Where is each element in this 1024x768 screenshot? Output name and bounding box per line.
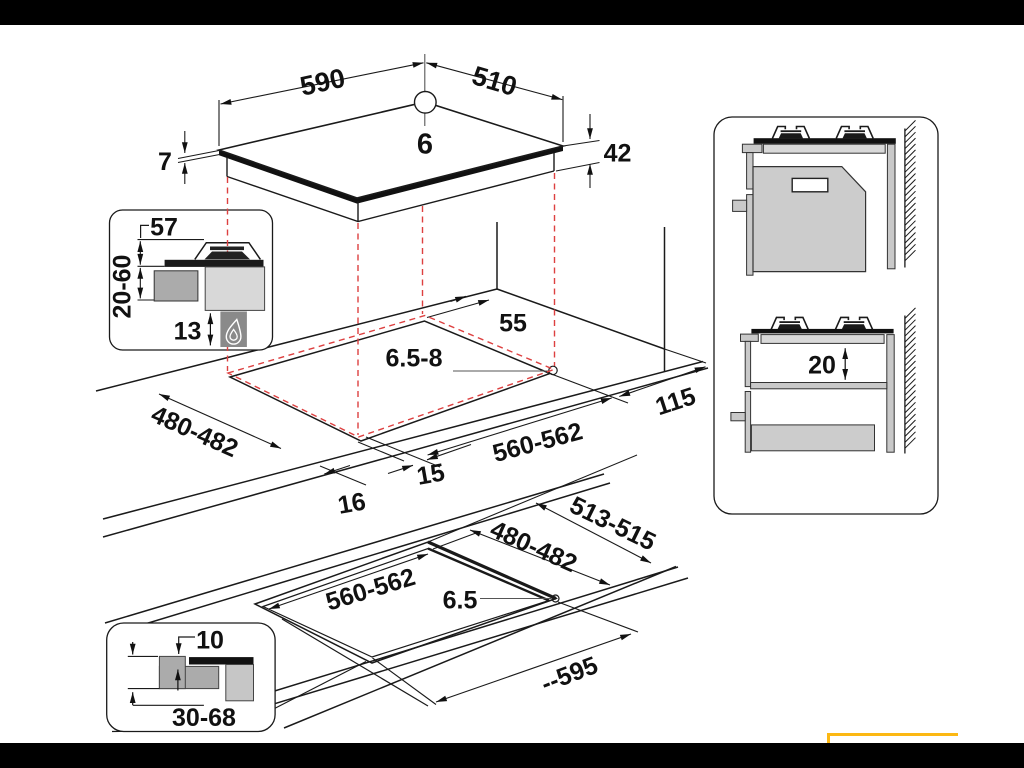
svg-text:7: 7 — [158, 148, 172, 176]
svg-text:55: 55 — [499, 310, 527, 338]
svg-text:30-68: 30-68 — [172, 704, 236, 732]
svg-text:13: 13 — [174, 318, 202, 346]
svg-text:6.5: 6.5 — [443, 587, 478, 615]
svg-text:6.5-8: 6.5-8 — [386, 345, 443, 373]
svg-text:16: 16 — [336, 487, 368, 519]
svg-text:20-60: 20-60 — [109, 255, 137, 319]
svg-text:10: 10 — [196, 627, 224, 655]
svg-text:42: 42 — [604, 140, 632, 168]
svg-text:6: 6 — [417, 129, 433, 161]
svg-text:15: 15 — [415, 458, 447, 490]
svg-text:20: 20 — [808, 352, 836, 380]
svg-text:57: 57 — [150, 214, 178, 242]
